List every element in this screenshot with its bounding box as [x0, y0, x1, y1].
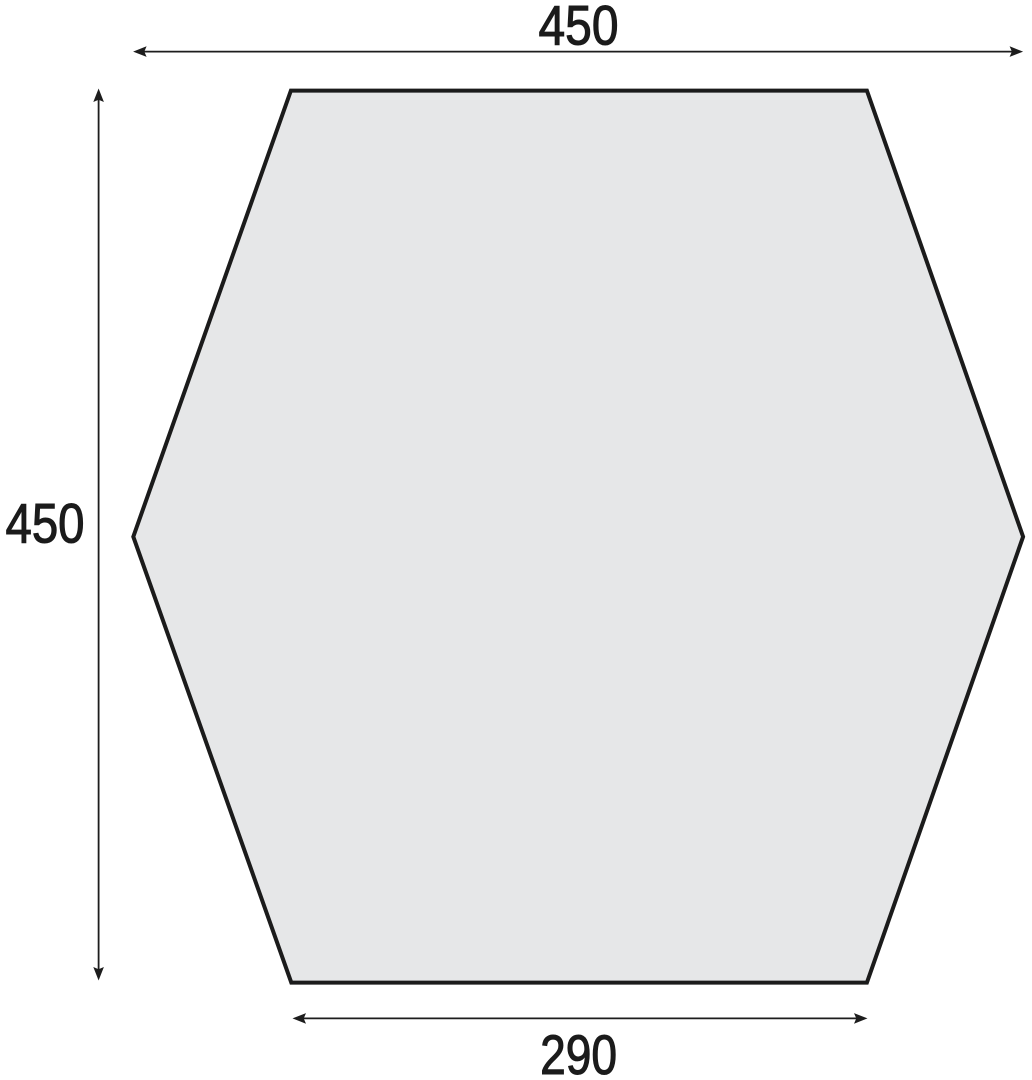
- svg-text:450: 450: [6, 492, 85, 555]
- svg-text:290: 290: [540, 1023, 617, 1080]
- svg-text:450: 450: [539, 0, 619, 56]
